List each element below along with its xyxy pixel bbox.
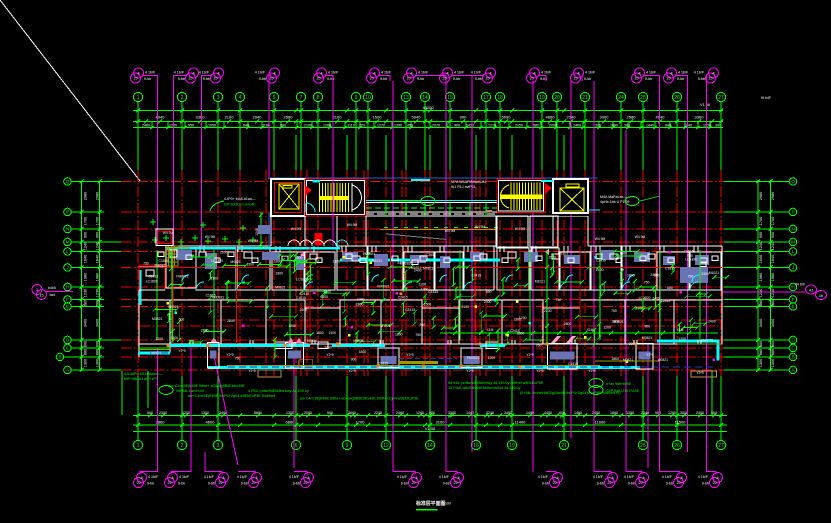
svg-text:900: 900	[460, 114, 467, 119]
svg-text:1280: 1280	[323, 123, 331, 127]
svg-text:2J: 2J	[213, 77, 217, 81]
svg-text:2400: 2400	[484, 300, 492, 304]
svg-text:Y2*9: Y2*9	[466, 369, 473, 373]
svg-text:1: 1	[137, 95, 140, 101]
svg-text:6: 6	[295, 443, 298, 449]
svg-text:1440: 1440	[646, 123, 654, 127]
svg-text:1200: 1200	[421, 288, 429, 292]
svg-text:标准层平面图: 标准层平面图	[415, 500, 445, 507]
svg-text:Y2*9: Y2*9	[526, 353, 533, 357]
svg-text:4: 4	[712, 72, 714, 76]
svg-text:900: 900	[351, 358, 357, 362]
svg-text:4400: 4400	[544, 411, 552, 415]
svg-text:5090: 5090	[502, 114, 512, 119]
svg-text:2J: 2J	[218, 481, 222, 485]
svg-text:1200: 1200	[169, 123, 177, 127]
svg-text:12: 12	[383, 443, 389, 449]
svg-text:1260: 1260	[416, 411, 424, 415]
svg-text:4: 4	[642, 476, 644, 480]
svg-text:1500: 1500	[373, 114, 383, 119]
svg-text:24: 24	[618, 95, 624, 101]
svg-text:4: 4	[680, 476, 682, 480]
svg-text:E: E	[66, 304, 69, 309]
svg-text:4600: 4600	[206, 419, 216, 424]
svg-text:750: 750	[536, 343, 542, 347]
svg-text:4 1b/F: 4 1b/F	[145, 71, 156, 75]
svg-text:M1021: M1021	[709, 271, 719, 275]
svg-text:2J: 2J	[316, 77, 320, 81]
svg-text:1230: 1230	[84, 289, 88, 297]
svg-text:2J: 2J	[529, 77, 533, 81]
svg-text:W4 9M: W4 9M	[347, 223, 358, 227]
svg-text:LC1820: LC1820	[211, 259, 223, 263]
svg-text:4 1b/F: 4 1b/F	[454, 71, 465, 75]
svg-text:900: 900	[327, 411, 333, 415]
svg-text:2400: 2400	[652, 296, 660, 300]
svg-text:2100: 2100	[544, 309, 552, 313]
svg-text:M7A W4APfA9ad4J44: M7A W4APfA9ad4J44	[451, 180, 487, 184]
svg-text:b4b5: b4b5	[48, 286, 56, 290]
svg-text:9-bb: 9-bb	[584, 77, 591, 81]
svg-text:4: 4	[556, 476, 558, 480]
svg-text:1300: 1300	[201, 411, 209, 415]
svg-text:9of 9aL1um9 t49: 9of 9aL1um9 t49	[176, 389, 204, 393]
svg-text:2J: 2J	[666, 77, 670, 81]
svg-text:N: N	[791, 227, 794, 232]
svg-text:2J: 2J	[453, 481, 457, 485]
svg-text:C1815: C1815	[665, 267, 675, 271]
svg-text:LC1820: LC1820	[146, 280, 158, 284]
svg-text:680: 680	[533, 123, 539, 127]
svg-text:4: 4	[273, 72, 275, 76]
svg-text:2100: 2100	[329, 331, 337, 335]
svg-text:880: 880	[759, 349, 763, 355]
svg-text:C2415: C2415	[148, 274, 158, 278]
svg-text:750: 750	[143, 261, 149, 265]
svg-text:4 1b/F: 4 1b/F	[662, 475, 673, 479]
svg-text:4: 4	[410, 72, 412, 76]
svg-text:4: 4	[171, 476, 173, 480]
svg-text:900: 900	[644, 325, 650, 329]
svg-text:1300: 1300	[286, 411, 294, 415]
svg-text:Y2*9: Y2*9	[178, 349, 185, 353]
svg-text:M1021: M1021	[372, 259, 382, 263]
svg-text:W4 9M: W4 9M	[163, 231, 174, 235]
svg-text:M: M	[791, 240, 795, 245]
svg-text:3400: 3400	[759, 319, 763, 327]
svg-text:44200: 44200	[422, 105, 434, 110]
svg-text:L: L	[792, 249, 795, 254]
svg-text:M0821: M0821	[275, 285, 285, 289]
svg-text:4: 4	[192, 72, 194, 76]
svg-text:13: 13	[403, 95, 409, 101]
svg-text:680: 680	[759, 300, 763, 306]
svg-text:3000: 3000	[600, 114, 610, 119]
svg-text:1200: 1200	[603, 326, 611, 330]
svg-text:9: 9	[355, 95, 358, 101]
svg-text:Y2*9: Y2*9	[326, 353, 333, 357]
svg-text:Y2*9: Y2*9	[248, 369, 255, 373]
svg-text:4 1b/F: 4 1b/F	[397, 475, 408, 479]
svg-text:3000: 3000	[448, 411, 456, 415]
svg-text:10: 10	[365, 95, 371, 101]
svg-text:800: 800	[84, 341, 88, 347]
svg-text:3: 3	[217, 443, 220, 449]
svg-text:27: 27	[718, 95, 724, 101]
svg-text:800: 800	[771, 341, 775, 347]
svg-text:C2415: C2415	[660, 299, 670, 303]
svg-text:4 1b/F: 4 1b/F	[199, 71, 210, 75]
svg-text:900: 900	[654, 274, 660, 278]
svg-text:900: 900	[454, 123, 460, 127]
svg-text:4: 4	[222, 476, 224, 480]
svg-text:1700: 1700	[356, 419, 366, 424]
svg-text:2800: 2800	[227, 319, 235, 323]
svg-text:2300: 2300	[159, 411, 167, 415]
svg-text:680: 680	[771, 300, 775, 306]
svg-text:2J: 2J	[638, 481, 642, 485]
svg-text:940: 940	[665, 123, 671, 127]
svg-text:J: J	[792, 265, 794, 270]
svg-text:LC1820: LC1820	[296, 277, 308, 281]
svg-text:390: 390	[715, 123, 721, 127]
svg-text:C2415: C2415	[471, 274, 481, 278]
svg-text:3400: 3400	[84, 319, 88, 327]
svg-text:1270: 1270	[377, 123, 385, 127]
svg-text:2100: 2100	[220, 250, 228, 254]
svg-text:4: 4	[670, 72, 672, 76]
svg-text:1800: 1800	[276, 271, 284, 275]
svg-text:1640: 1640	[759, 255, 763, 263]
svg-text:1200: 1200	[182, 411, 190, 415]
svg-text:2: 2	[181, 443, 184, 449]
svg-text:4 1b/F: 4 1b/F	[585, 71, 596, 75]
svg-text:4 1b/F: 4 1b/F	[678, 71, 689, 75]
svg-text:3000: 3000	[680, 411, 688, 415]
svg-text:1800: 1800	[295, 256, 303, 260]
svg-text:B: B	[791, 355, 794, 360]
svg-text:720: 720	[359, 123, 365, 127]
svg-text:b9P 9tfLbL1a9 +1P9: b9P 9tfLbL1a9 +1P9	[124, 377, 158, 381]
svg-text:2800: 2800	[564, 322, 572, 326]
svg-text:4: 4	[320, 72, 322, 76]
svg-text:9-bb: 9-bb	[203, 77, 210, 81]
svg-text:27: 27	[718, 443, 724, 449]
svg-text:9-bb: 9-bb	[293, 482, 300, 486]
svg-text:C1515: C1515	[378, 362, 388, 366]
svg-text:M1021: M1021	[411, 266, 421, 270]
svg-text:FM0921: FM0921	[701, 338, 714, 342]
svg-text:M0821: M0821	[353, 339, 363, 343]
svg-text:4 1b/F: 4 1b/F	[698, 475, 709, 479]
svg-text:900: 900	[84, 232, 88, 238]
svg-text:21: 21	[582, 95, 588, 101]
svg-text:5: 5	[273, 95, 276, 101]
svg-text:1240: 1240	[771, 242, 775, 250]
svg-text:2J: 2J	[708, 77, 712, 81]
svg-text:H: H	[66, 285, 69, 290]
svg-text:5650: 5650	[254, 411, 262, 415]
svg-text:1980: 1980	[84, 273, 88, 281]
svg-text:4: 4	[239, 95, 242, 101]
svg-text:4 1b/F: 4 1b/F	[541, 71, 552, 75]
svg-text:1500: 1500	[424, 302, 432, 306]
svg-text:2060: 2060	[549, 123, 557, 127]
svg-text:2J: 2J	[634, 77, 638, 81]
svg-text:C1815: C1815	[159, 259, 169, 263]
svg-text:C2415: C2415	[398, 296, 408, 300]
svg-text:1700: 1700	[771, 217, 775, 225]
svg-text:4 1b/F: 4 1b/F	[593, 475, 604, 479]
svg-text:F: F	[792, 297, 795, 302]
svg-text:2100: 2100	[333, 114, 343, 119]
svg-text:1500: 1500	[620, 252, 628, 256]
svg-text:W4 9M: W4 9M	[205, 235, 216, 239]
svg-text:1700: 1700	[84, 217, 88, 225]
svg-text:M1021: M1021	[307, 339, 317, 343]
svg-text:2100: 2100	[225, 114, 235, 119]
svg-text:LC1820: LC1820	[639, 296, 651, 300]
svg-text:L: L	[66, 249, 69, 254]
svg-text:4940: 4940	[656, 114, 666, 119]
svg-text:9-bb: 9-bb	[178, 482, 185, 486]
svg-text:3400: 3400	[96, 319, 100, 327]
svg-text:4: 4	[638, 72, 640, 76]
svg-text:3: 3	[217, 95, 220, 101]
svg-text:FM0921: FM0921	[467, 356, 480, 360]
svg-text:4-tP0+ M48-b1ao—: 4-tP0+ M48-b1ao—	[224, 197, 256, 201]
svg-text:1200: 1200	[156, 337, 164, 341]
svg-text:9-bb: 9-bb	[666, 482, 673, 486]
svg-text:J: J	[66, 265, 68, 270]
svg-text:X1M: X1M	[587, 328, 594, 332]
svg-text:3600: 3600	[348, 411, 356, 415]
svg-text:2240: 2240	[374, 411, 382, 415]
svg-text:4: 4	[415, 476, 417, 480]
svg-text:3450: 3450	[504, 411, 512, 415]
svg-text:5940: 5940	[412, 114, 422, 119]
svg-text:1800: 1800	[316, 331, 324, 335]
svg-text:880: 880	[771, 349, 775, 355]
svg-text:1800: 1800	[627, 273, 635, 277]
svg-text:750: 750	[415, 333, 421, 337]
svg-text:2400: 2400	[397, 261, 405, 265]
svg-text:M: M	[66, 240, 70, 245]
svg-text:1200: 1200	[513, 318, 521, 322]
svg-text:4: 4	[489, 72, 491, 76]
svg-text:2100: 2100	[300, 308, 308, 312]
svg-text:1200: 1200	[668, 411, 676, 415]
svg-text:2J: 2J	[411, 481, 415, 485]
svg-text:M0821: M0821	[642, 336, 652, 340]
svg-text:9-bb: 9-bb	[702, 482, 709, 486]
svg-text:1240: 1240	[84, 242, 88, 250]
svg-text:2J: 2J	[269, 77, 273, 81]
svg-text:2J: 2J	[251, 481, 255, 485]
svg-text:390: 390	[280, 123, 286, 127]
svg-text:O: O	[791, 179, 795, 184]
svg-text:1460: 1460	[573, 123, 581, 127]
svg-text:600: 600	[667, 286, 673, 290]
svg-text:9-bb: 9-bb	[259, 77, 266, 81]
svg-text:M0821: M0821	[151, 351, 161, 355]
svg-text:N: N	[66, 227, 69, 232]
svg-text:1700: 1700	[96, 217, 100, 225]
svg-text:2980: 2980	[759, 192, 763, 200]
svg-text:2460: 2460	[396, 411, 404, 415]
svg-text:1210: 1210	[488, 123, 496, 127]
svg-text:P: P	[66, 210, 69, 215]
svg-text:1800: 1800	[274, 260, 282, 264]
svg-text:4J: 4J	[809, 288, 813, 292]
svg-text:1640: 1640	[771, 255, 775, 263]
svg-text:4 1b/F: 4 1b/F	[328, 71, 339, 75]
svg-text:aw>C4m/9EjK49E 9dfre+ e04avg9B: aw>C4m/9EjK49E 9dfre+ e04avg9B9EbKu49E	[168, 384, 245, 388]
svg-text:1240: 1240	[96, 242, 100, 250]
svg-text:W4 9M: W4 9M	[291, 227, 302, 231]
svg-text:4 1b/F: 4 1b/F	[471, 71, 482, 75]
svg-text:1240: 1240	[759, 242, 763, 250]
svg-text:2240: 2240	[486, 411, 494, 415]
svg-text:C2415: C2415	[405, 308, 415, 312]
svg-text:4: 4	[577, 72, 579, 76]
svg-text:44 b/F: 44 b/F	[795, 283, 806, 287]
svg-text:Q: Q	[66, 179, 70, 184]
svg-text:9-bb: 9-bb	[597, 482, 604, 486]
svg-text:680: 680	[84, 300, 88, 306]
svg-text:2100: 2100	[635, 307, 643, 311]
svg-text:E: E	[791, 304, 794, 309]
svg-text:1230: 1230	[96, 289, 100, 297]
svg-text:4 1b/F: 4 1b/F	[538, 475, 549, 479]
svg-text:W4 9M: W4 9M	[635, 235, 646, 239]
svg-text:4 1b/F: 4 1b/F	[624, 475, 635, 479]
svg-text:14 P4dL w9d2w94dEbMtw.bw94d 4d: 14 P4dL w9d2w94dEbMtw.bw94d 4d.149.0y	[448, 386, 521, 390]
svg-text:2J: 2J	[303, 481, 307, 485]
svg-text:2J: 2J	[167, 481, 171, 485]
svg-text:FM0921: FM0921	[363, 252, 376, 256]
svg-text:2580: 2580	[627, 114, 637, 119]
svg-text:C9P 9dfLU19 P.A9E: C9P 9dfLU19 P.A9E	[606, 389, 640, 393]
svg-text:9-bb: 9-bb	[380, 77, 387, 81]
svg-text:aw C4m 9EjK49E 9dfre+ e04avg9B: aw C4m 9EjK49E 9dfre+ e04avg9B9EbKu49E 9…	[300, 397, 419, 401]
svg-text:FM0921: FM0921	[176, 274, 189, 278]
svg-text:390: 390	[624, 123, 630, 127]
svg-text:3360: 3360	[695, 114, 705, 119]
svg-text:750: 750	[611, 309, 617, 313]
svg-text:1800: 1800	[359, 350, 367, 354]
svg-text:2J: 2J	[369, 77, 373, 81]
svg-text:800: 800	[96, 341, 100, 347]
svg-text:2580: 2580	[284, 114, 294, 119]
svg-text:1300: 1300	[771, 359, 775, 367]
svg-text:4 1b/F: 4 1b/F	[237, 475, 248, 479]
svg-text:1230: 1230	[771, 289, 775, 297]
svg-text:21: 21	[561, 443, 567, 449]
svg-text:750: 750	[688, 275, 694, 279]
svg-text:9-bb: 9-bb	[677, 77, 684, 81]
svg-text:o+av 9dfrnM9E: o+av 9dfrnM9E	[606, 382, 632, 386]
svg-text:C1515: C1515	[568, 362, 578, 366]
svg-text:2J: 2J	[133, 77, 137, 81]
svg-text:900: 900	[629, 342, 635, 346]
svg-text:3100: 3100	[436, 419, 446, 424]
svg-text:14: 14	[422, 95, 428, 101]
svg-text:4: 4	[255, 476, 257, 480]
svg-text:18: 18	[497, 95, 503, 101]
svg-text:750: 750	[644, 281, 650, 285]
svg-text:880: 880	[96, 349, 100, 355]
svg-text:M0821: M0821	[658, 358, 668, 362]
svg-text:2980: 2980	[771, 192, 775, 200]
svg-text:4 1b/F: 4 1b/F	[255, 71, 266, 75]
svg-text:9-bb: 9-bb	[144, 77, 151, 81]
svg-text:9f b4F: 9f b4F	[761, 96, 772, 100]
svg-text:2400: 2400	[592, 411, 600, 415]
svg-text:2J: 2J	[573, 77, 577, 81]
svg-text:2100: 2100	[596, 268, 604, 272]
svg-text:600: 600	[179, 317, 185, 321]
svg-text:1: 1	[137, 443, 140, 449]
svg-text:2400: 2400	[324, 346, 332, 350]
svg-text:4: 4	[137, 72, 139, 76]
svg-text:M0821: M0821	[152, 317, 162, 321]
svg-text:Y2*9: Y2*9	[226, 353, 233, 357]
svg-text:880: 880	[84, 349, 88, 355]
svg-text:1: 1	[36, 288, 38, 292]
svg-text:1390: 1390	[394, 123, 402, 127]
svg-text:M4A MaPaLse—: M4A MaPaLse—	[600, 195, 627, 199]
svg-text:Y2*9: Y2*9	[348, 369, 355, 373]
svg-text:750: 750	[235, 356, 241, 360]
svg-text:900: 900	[655, 411, 661, 415]
svg-text:1300: 1300	[96, 359, 100, 367]
svg-text:1640: 1640	[96, 255, 100, 263]
svg-text:4JL4dPo M1LtMa4se—: 4JL4dPo M1LtMa4se—	[124, 372, 163, 376]
svg-text:Y2*9: Y2*9	[536, 369, 543, 373]
svg-text:2400: 2400	[696, 411, 704, 415]
svg-text:M1021: M1021	[168, 305, 178, 309]
svg-text:2940: 2940	[253, 114, 263, 119]
svg-text:1500: 1500	[320, 295, 328, 299]
svg-text:11500: 11500	[675, 419, 687, 424]
svg-text:2400: 2400	[708, 319, 716, 323]
svg-text:2800: 2800	[356, 303, 364, 307]
svg-text:C1515: C1515	[684, 250, 694, 254]
svg-text:9: 9	[346, 443, 349, 449]
svg-text:800: 800	[759, 341, 763, 347]
svg-text:M1021: M1021	[535, 280, 545, 284]
svg-text:2J: 2J	[485, 77, 489, 81]
svg-text:9-bb: 9-bb	[147, 482, 154, 486]
svg-text:1200: 1200	[419, 283, 427, 287]
svg-text:P: P	[791, 210, 794, 215]
svg-text:900: 900	[771, 232, 775, 238]
svg-text:C1815: C1815	[428, 290, 438, 294]
svg-text:4 1b/F: 4 1b/F	[179, 475, 190, 479]
svg-text:4 1b/F: 4 1b/F	[646, 71, 657, 75]
svg-text:1200: 1200	[171, 336, 179, 340]
svg-text:F: F	[66, 297, 69, 302]
svg-text:2100: 2100	[372, 343, 380, 347]
svg-text:4860: 4860	[546, 114, 556, 119]
svg-text:19: 19	[509, 443, 515, 449]
svg-text:4: 4	[533, 72, 535, 76]
svg-text:9-bb: 9-bb	[417, 77, 424, 81]
svg-text:500: 500	[147, 411, 153, 415]
svg-text:1500: 1500	[548, 256, 556, 260]
svg-text:1500: 1500	[323, 290, 331, 294]
